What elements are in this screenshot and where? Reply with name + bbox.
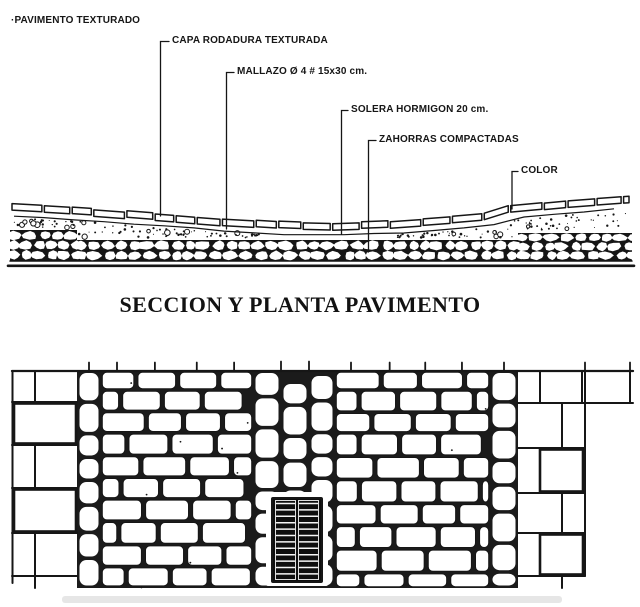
label-zahorras: ZAHORRAS COMPACTADAS [379,135,519,145]
technical-drawing-page: ·PAVIMENTO TEXTURADO CAPA RODADURA TEXTU… [0,0,640,607]
label-capa-rodadura: CAPA RODADURA TEXTURADA [172,36,328,46]
section-view [7,196,640,266]
plan-view [12,362,633,604]
drawing-title: SECCION Y PLANTA PAVIMENTO [0,292,600,318]
label-mallazo: MALLAZO Ø 4 # 15x30 cm. [237,67,367,77]
label-pavimento-texturado: ·PAVIMENTO TEXTURADO [11,16,140,26]
label-color: COLOR [521,166,558,176]
label-solera-hormigon: SOLERA HORMIGON 20 cm. [351,105,488,115]
